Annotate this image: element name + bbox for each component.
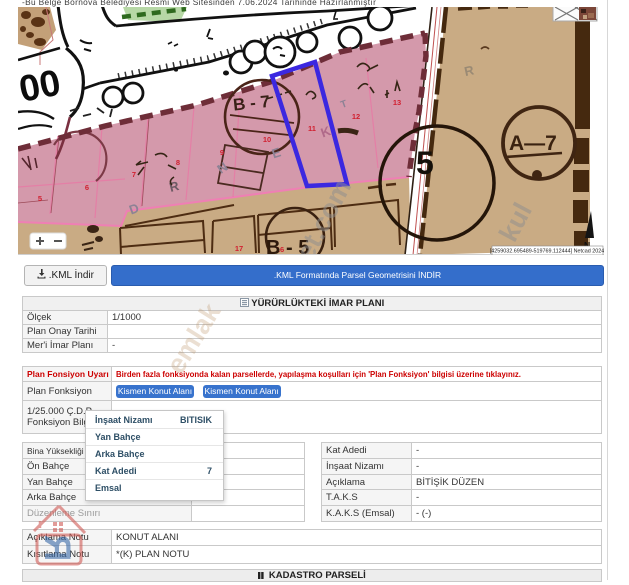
svg-text:8: 8 xyxy=(176,158,180,167)
svg-text:11: 11 xyxy=(308,124,316,133)
svg-text:A—7: A—7 xyxy=(509,132,557,155)
svg-text:7: 7 xyxy=(132,170,136,179)
svg-text:13: 13 xyxy=(393,98,401,107)
svg-text:10: 10 xyxy=(263,135,271,144)
svg-text:R: R xyxy=(37,535,78,562)
svg-text:00: 00 xyxy=(18,62,64,110)
svg-text:12: 12 xyxy=(352,112,360,121)
svg-text:5: 5 xyxy=(38,194,42,203)
svg-text:6: 6 xyxy=(85,183,89,192)
svg-text:B - 7: B - 7 xyxy=(232,92,271,115)
svg-text:9: 9 xyxy=(220,148,224,157)
svg-text:5: 5 xyxy=(416,145,434,181)
svg-text:[4259032.695489-519769.112444]: [4259032.695489-519769.112444] Netcad 20… xyxy=(490,249,604,255)
